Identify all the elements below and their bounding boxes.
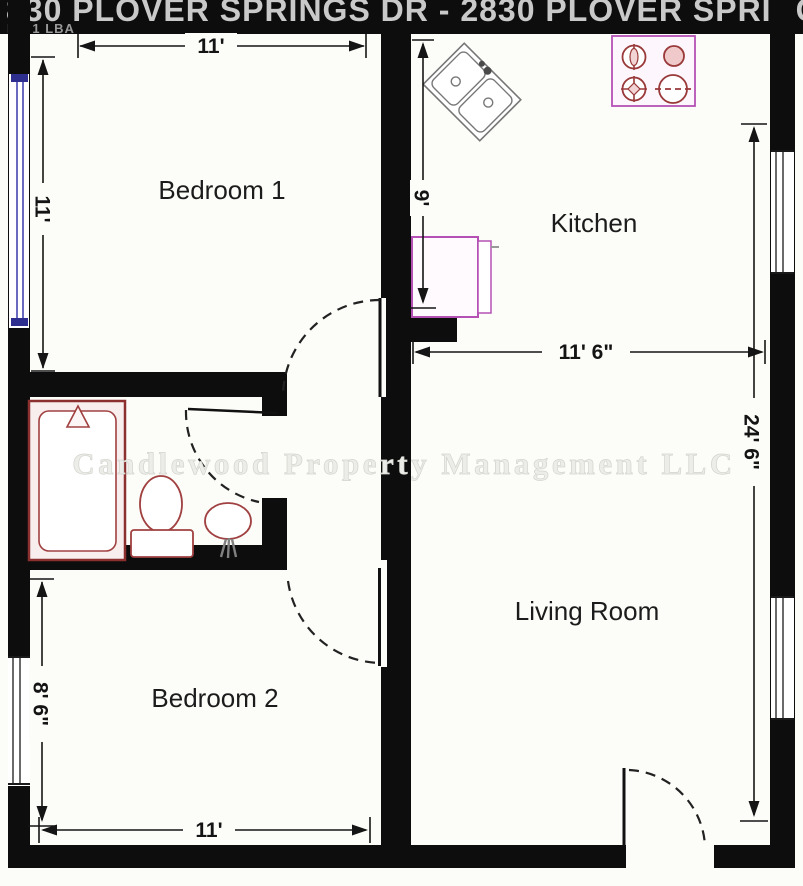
stove-icon — [612, 36, 695, 106]
room-label-living-room: Living Room — [515, 596, 660, 626]
dim-label-bedroom1-width: 11' — [197, 35, 224, 58]
dim-label-kitchen-width: 11' 6" — [559, 341, 614, 364]
room-label-bedroom2: Bedroom 2 — [151, 683, 278, 713]
watermark: Candlewood Property Management LLC — [72, 446, 735, 481]
wall-bottom-right — [714, 845, 795, 868]
wall-right-exterior — [770, 0, 795, 868]
wall-bathroom-cap — [262, 372, 287, 416]
wall-central — [381, 34, 411, 845]
dim-label-bedroom2-width: 11' — [195, 819, 222, 842]
living-room-window — [771, 596, 794, 720]
bedroom1-window — [9, 74, 29, 328]
wall-bottom-left — [8, 845, 626, 868]
room-label-kitchen: Kitchen — [551, 208, 638, 238]
kitchen-window — [771, 150, 794, 274]
dim-label-overall-depth: 24' 6" — [740, 414, 763, 470]
bedroom2-window — [8, 656, 30, 786]
floor-plan-page: 830 PLOVER SPRINGS DR - 2830 PLOVER SPRI… — [0, 0, 803, 886]
room-label-bedroom1: Bedroom 1 — [158, 175, 285, 205]
dim-label-kitchen-depth: 9' — [410, 190, 433, 207]
header: 830 PLOVER SPRINGS DR - 2830 PLOVER SPRI… — [0, 0, 803, 36]
dim-label-bedroom1-depth: 11' — [31, 195, 54, 222]
refrigerator-icon — [412, 237, 499, 317]
wall-bedroom1-bathroom — [8, 372, 287, 397]
page-title: 830 PLOVER SPRINGS DR - 2830 PLOVER SPRI… — [6, 0, 803, 28]
dim-label-bedroom2-depth: 8' 6" — [29, 682, 52, 726]
